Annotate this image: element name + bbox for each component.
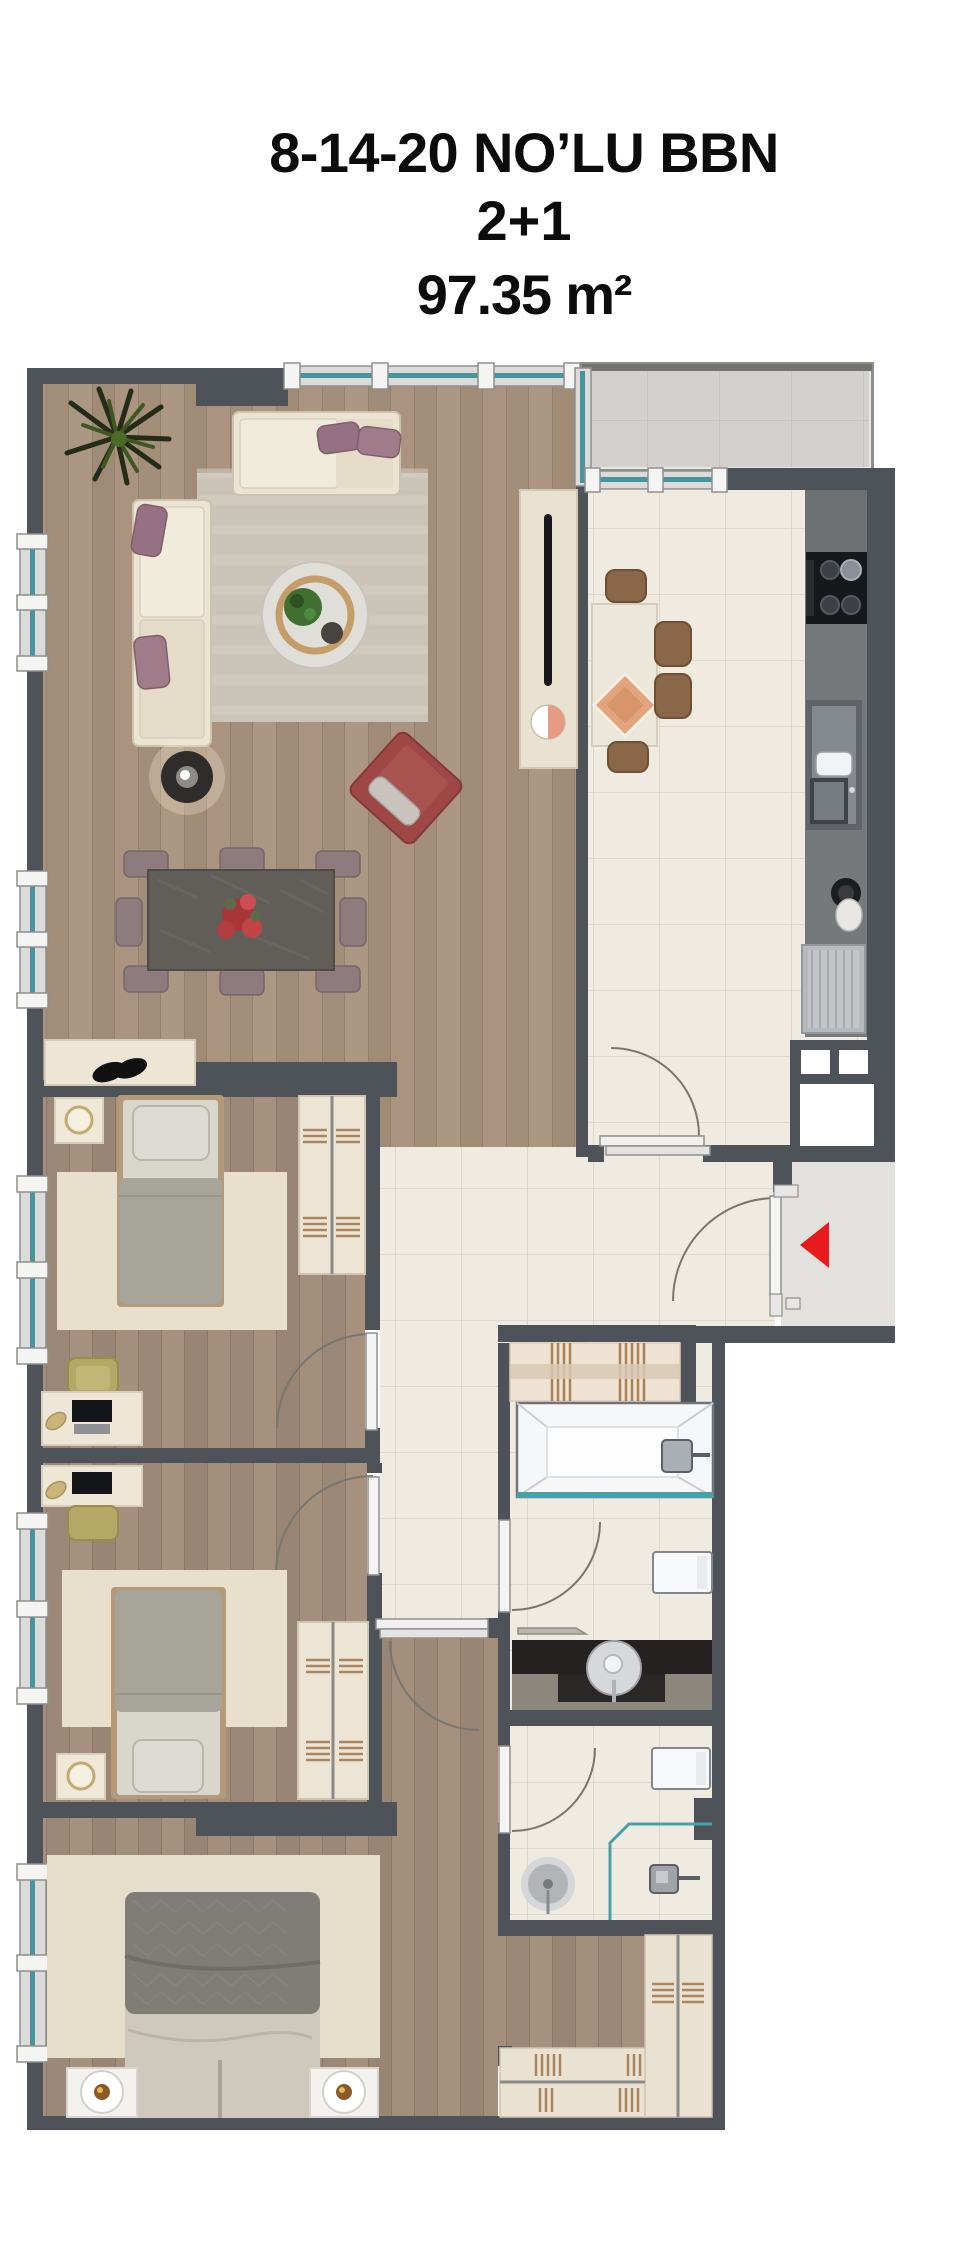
svg-text:8-14-20 NO’LU BBN: 8-14-20 NO’LU BBN [269,121,778,184]
svg-text:2+1: 2+1 [477,189,572,252]
svg-text:97.35 m²: 97.35 m² [417,263,632,326]
